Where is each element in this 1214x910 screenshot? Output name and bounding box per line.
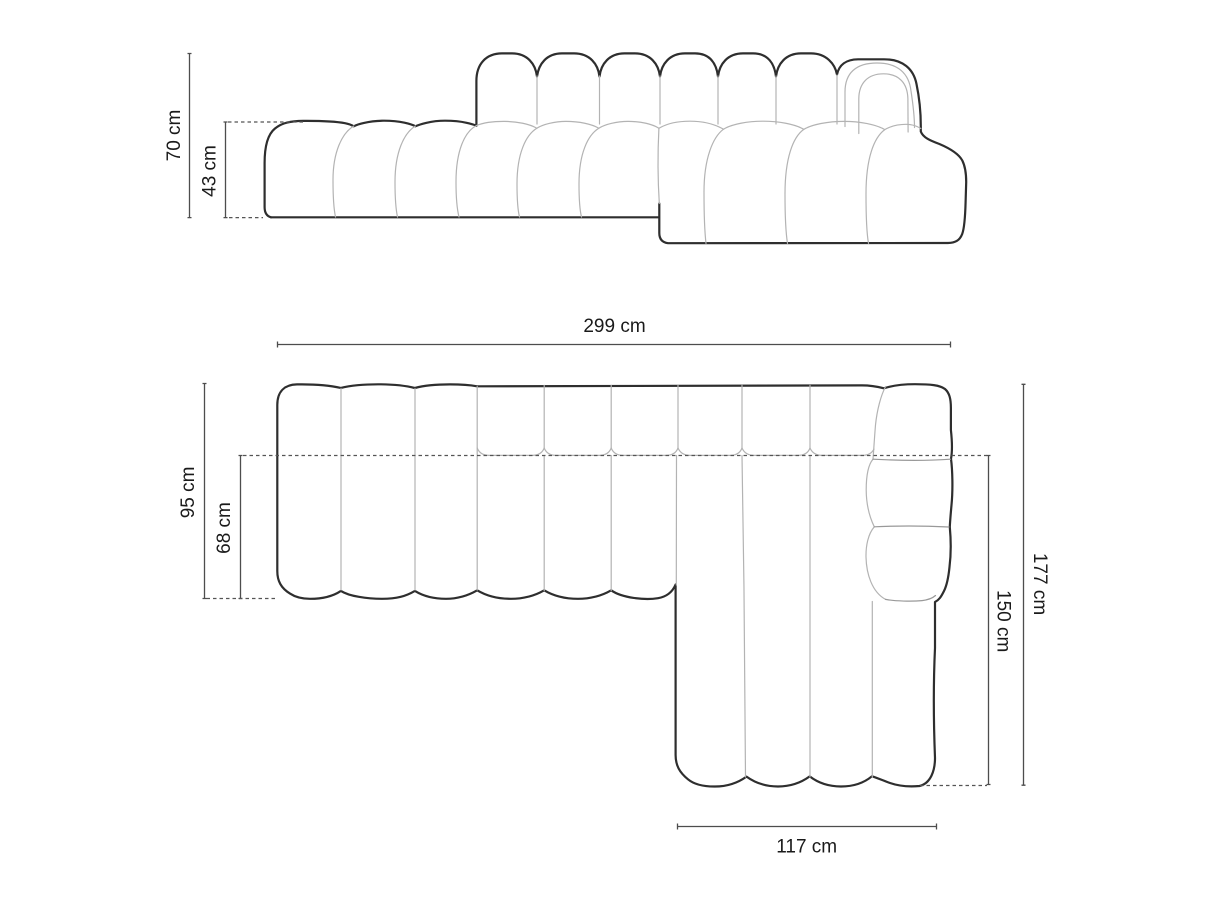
svg-text:70 cm: 70 cm	[164, 110, 185, 162]
svg-text:150 cm: 150 cm	[993, 590, 1014, 652]
svg-text:117 cm: 117 cm	[776, 837, 837, 858]
svg-text:177 cm: 177 cm	[1029, 553, 1050, 615]
svg-text:68 cm: 68 cm	[214, 502, 235, 554]
svg-text:43 cm: 43 cm	[200, 145, 221, 197]
svg-text:299 cm: 299 cm	[583, 316, 645, 337]
svg-text:95 cm: 95 cm	[178, 467, 199, 519]
